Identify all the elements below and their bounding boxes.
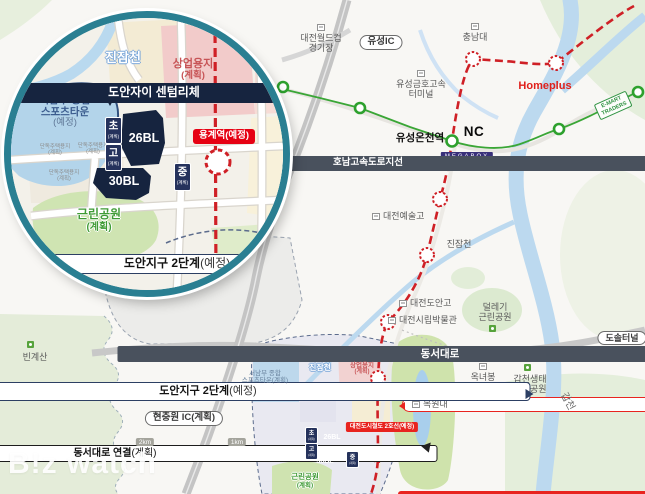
nc-department-store-label: NC xyxy=(464,124,485,140)
school-high-marker-inset: 고(계획) xyxy=(106,145,121,170)
jinjamcheon-upper-label: 진잠천 xyxy=(447,239,472,249)
building-icon xyxy=(417,70,425,77)
building-icon xyxy=(372,213,380,220)
building-icon xyxy=(388,317,396,324)
block-30bl-label: 30BL xyxy=(109,174,140,188)
district2-label: 도안지구 2단계(예정) xyxy=(0,382,531,401)
dallegi-park-label: 덜레기근린공원 xyxy=(478,302,511,323)
bingyesan-label: 빈계산 xyxy=(23,352,48,362)
block-30bl-main: 30BL xyxy=(316,458,333,466)
yuseong-ic-label: 유성IC xyxy=(360,35,403,50)
housing-label-2: 단독주택용지(계획) xyxy=(78,143,108,156)
building-icon xyxy=(471,23,479,30)
dosol-tunnel-label: 도솔터널 xyxy=(597,331,645,345)
school-mid-marker-main: 중(계획) xyxy=(347,452,358,467)
doan-high-label: 대전도안고 xyxy=(399,298,451,308)
sports-town-main-label: 서남부 종합스포츠타운(계획) xyxy=(242,370,288,385)
worldcup-stadium-label: 대전월드컵경기장 xyxy=(300,33,341,54)
inset-yonggye-station-label: 용계역(예정) xyxy=(193,129,255,144)
inset-station-circle xyxy=(206,150,230,174)
line2-badge: 대전도시철도 2호선(예정) xyxy=(346,422,418,432)
arts-high-label: 대전예술고 xyxy=(372,211,424,221)
school-elem-marker-main: 초(계획) xyxy=(306,428,317,443)
inset-stream-label: 진잠천 xyxy=(105,51,141,66)
scale-2km-tag: 2km xyxy=(136,438,154,446)
project-callout-inset: 도안자이 센텀리체 xyxy=(18,83,290,103)
block-26bl-label: 26BL xyxy=(129,131,160,145)
block-26bl-main: 26BL xyxy=(323,434,340,442)
hyeonchungwon-ic-label: 현충원 IC(계획) xyxy=(145,411,223,426)
scale-1km-tag: 1km xyxy=(228,438,246,446)
inset-commercial-label: 상업용지(계획) xyxy=(173,58,213,82)
inset-district2-label: 도안지구 2단계(예정) xyxy=(41,254,290,274)
inset-park-label: 근린공원(계획) xyxy=(77,208,121,233)
commercial-main-label: 상업용지(계획) xyxy=(350,362,374,376)
park-main-label: 근린공원(계획) xyxy=(291,473,319,489)
terminal-label: 유성금호고속터미널 xyxy=(396,79,446,100)
bizwatch-watermark: B!z watch xyxy=(8,447,157,481)
map-screenshot: 대전월드컵경기장 유성IC 충남대 유성금호고속터미널 Homeplus E-M… xyxy=(0,0,645,494)
school-elem-marker-inset: 초(계획) xyxy=(106,118,121,143)
dongseo-daero-label: 동서대로 xyxy=(118,346,645,362)
yuseong-oncheon-station-label: 유성온천역 xyxy=(396,132,444,144)
building-icon xyxy=(317,24,325,31)
housing-label-3: 단독주택용지(계획) xyxy=(49,170,79,183)
building-icon xyxy=(479,363,487,370)
school-mid-marker-inset: 중(계획) xyxy=(175,164,190,190)
museum-label: 대전시립박물관 xyxy=(388,315,457,325)
magnifier-inset: 진잠천 상업용지(계획) 서남부 종합스포츠타운 (예정) 도안자이 센텀리체 … xyxy=(4,11,290,297)
housing-label-1: 단독주택용지(계획) xyxy=(40,144,70,157)
mountain-icon xyxy=(27,341,34,348)
building-icon xyxy=(412,401,420,408)
school-high-marker-main: 고(계획) xyxy=(306,444,317,459)
park-icon xyxy=(524,364,531,371)
homeplus-label: Homeplus xyxy=(518,80,571,93)
jinjamcheon-lower-label: 진잠천 xyxy=(309,363,331,372)
building-icon xyxy=(399,300,407,307)
chungnam-univ-label: 충남대 xyxy=(463,32,488,42)
park-icon xyxy=(489,325,496,332)
